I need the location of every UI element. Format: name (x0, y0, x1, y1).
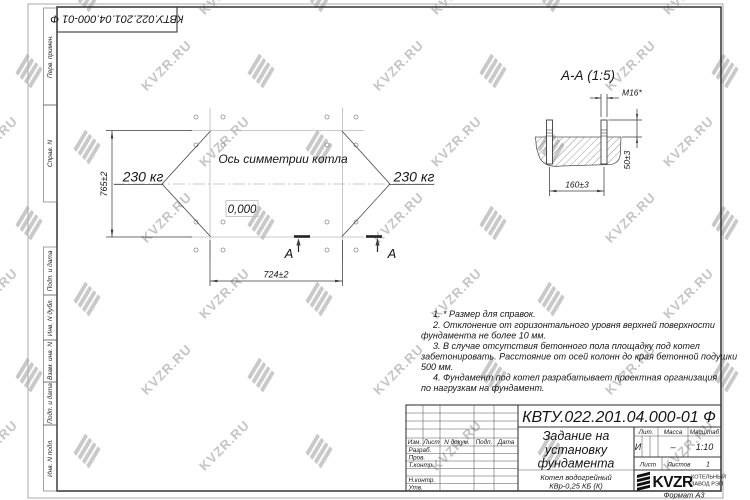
note-line: по нагрузкам на фундамент. (421, 383, 544, 393)
margin-strip: Перв. примен. Справ. N Подп. и дата Инв.… (44, 8, 58, 491)
margin-label: Инв. N подл. (46, 439, 54, 477)
load-left: 230 кг (122, 169, 164, 185)
row-razrab: Разраб. (409, 446, 432, 454)
note-line: забетонировать. Расстояние от осей колон… (420, 352, 737, 362)
anchor-bolt-holes (194, 115, 358, 252)
logo-text: KVZR (653, 474, 694, 491)
axis-label: Ось симметрии котла (218, 152, 348, 166)
lit-header: Лит. (638, 429, 654, 436)
product-line2: КВр-0,25 КБ (К) (549, 482, 603, 491)
spring-icon (637, 472, 650, 491)
dim-protrusion: 50±3 (622, 150, 632, 169)
col-izm: Изм. (408, 439, 421, 446)
section-view: А-А (1:5) М16* (536, 68, 643, 196)
note-line: фундамента не более 10 мм. (421, 331, 546, 341)
notes: 1. * Размер для справок. 2. Отклонение о… (420, 309, 737, 393)
note-line: 500 мм. (421, 362, 453, 372)
drawing-sheet: KVZR.RUKVZR.RUKVZR.RUKVZR.RUKVZR.RUKVZR.… (0, 0, 750, 500)
margin-label: Подп. и дата (46, 250, 54, 291)
margin-label: Перв. примен. (47, 35, 54, 78)
row-nkontr: Н.контр. (409, 477, 436, 484)
margin-label: Подп. и дата (46, 383, 54, 424)
col-podp: Подп. (476, 438, 493, 446)
sheets-value: 1 (706, 462, 710, 469)
sheet-label: Лист (639, 462, 656, 469)
row-tkontr: Т.контр. (409, 462, 434, 469)
doc-title-line3: фундамента (538, 457, 615, 471)
section-cut-marks: А А (284, 237, 397, 262)
note-line: 1. * Размер для справок. (433, 309, 536, 319)
lit-value: И (635, 442, 642, 452)
section-letter-right: А (387, 246, 397, 261)
logo-sub1: КОТЕЛЬНЫЙ (691, 473, 726, 481)
scale-header: Масштаб (690, 428, 720, 436)
dim-height: 765±2 (99, 172, 109, 197)
section-title: А-А (1:5) (560, 68, 615, 83)
section-letter-left: А (284, 246, 294, 261)
bolt-thread-label: М16* (622, 88, 643, 98)
doc-title-line2: установку (544, 443, 608, 457)
mass-value: – (669, 442, 676, 452)
sheets-label: Листов (667, 462, 692, 469)
top-designation-text: КВТУ.022.201.04.000-01 Ф (50, 13, 183, 25)
note-line: 2. Отклонение от горизонтального уровня … (432, 320, 715, 330)
level-mark: 0,000 (228, 204, 257, 216)
margin-label: Взам. инв. N (47, 342, 54, 380)
titleblock-designation: КВТУ.022.201.04.000-01 Ф (522, 409, 716, 426)
margin-label: Справ. N (47, 140, 54, 168)
doc-title-line1: Задание на (543, 429, 610, 443)
dim-spacing: 160±3 (565, 180, 589, 190)
col-list: Лист (422, 439, 439, 446)
title-block: КВТУ.022.201.04.000-01 Ф Изм. Лист N док… (406, 405, 726, 492)
kvzr-logo: KVZR КОТЕЛЬНЫЙ ЗАВОД РЭП (637, 472, 726, 491)
foundation-plan-view: 765±2 724±2 А А Ось симметрии котла (99, 108, 435, 286)
col-data: Дата (497, 439, 515, 446)
col-ndocum: N докум. (444, 438, 469, 446)
margin-label: Инв. N дубл. (46, 298, 54, 336)
drawing-linework: КВТУ.022.201.04.000-01 Ф Перв. примен. С… (0, 0, 750, 500)
row-utv: Утв. (408, 485, 423, 492)
scale-value: 1:10 (696, 442, 714, 452)
dim-width: 724±2 (264, 270, 289, 280)
format-label: Формат А3 (663, 491, 705, 500)
top-designation-box: КВТУ.022.201.04.000-01 Ф (50, 7, 183, 32)
row-prov: Пров. (409, 455, 426, 462)
load-right: 230 кг (393, 169, 435, 185)
mass-header: Масса (664, 429, 683, 436)
note-line: 3. В случае отсутствия бетонного пола пл… (433, 341, 700, 351)
note-line: 4. Фундамент под котел разрабатывает про… (433, 373, 717, 383)
logo-sub2: ЗАВОД РЭП (691, 482, 723, 488)
